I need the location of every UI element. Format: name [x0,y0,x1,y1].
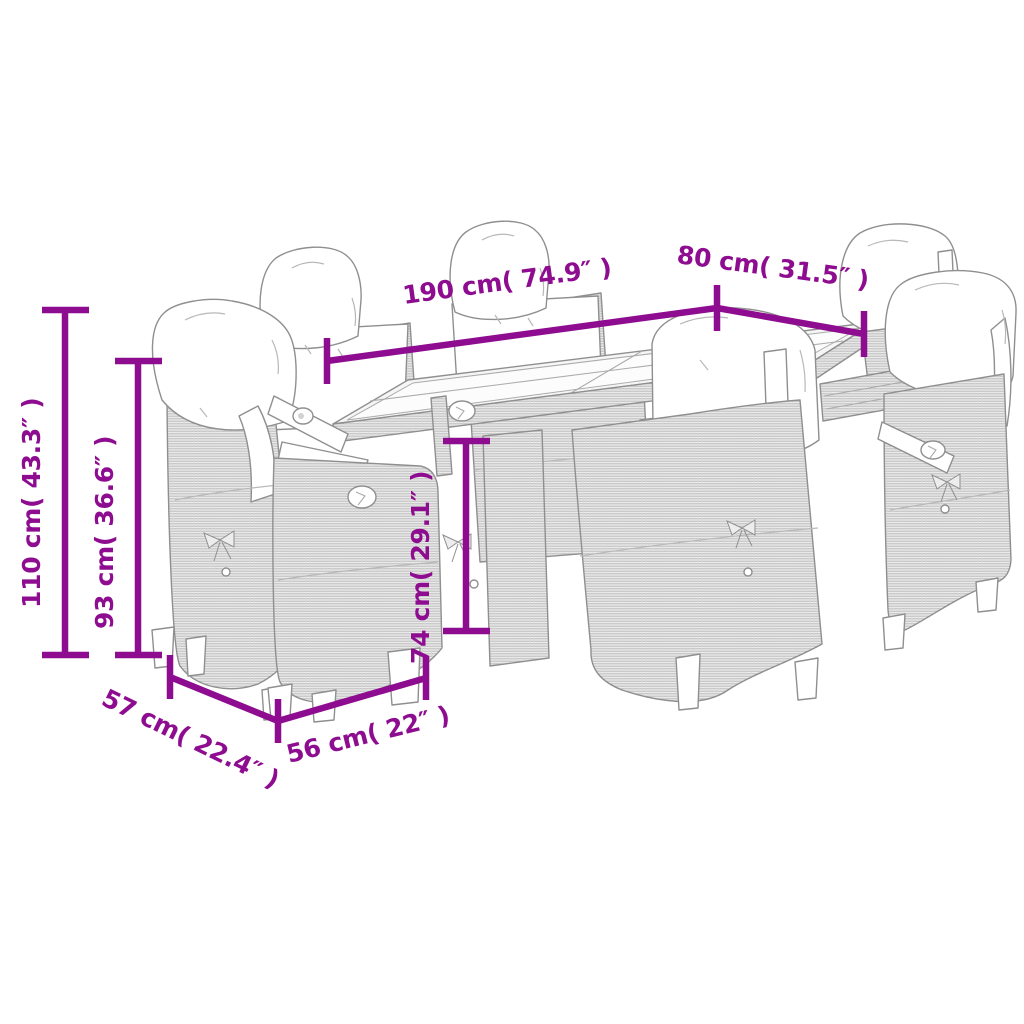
table-leg [483,430,549,666]
dimension-diagram-canvas: 190 cm( 74.9″ ) 80 cm( 31.5″ ) 110 cm( 4… [0,0,1024,1024]
dim-label-80: 80 cm( 31.5″ ) [675,240,870,294]
dim-label-110: 110 cm( 43.3″ ) [17,398,46,608]
furniture-line-art [152,221,1016,722]
dim-label-57: 57 cm( 22.4″ ) [97,683,283,794]
dim-label-74: 74 cm( 29.1″ ) [406,471,435,664]
right-end-chair [878,250,1016,650]
diagram-page: 190 cm( 74.9″ ) 80 cm( 31.5″ ) 110 cm( 4… [0,0,1024,1024]
dim-label-93: 93 cm( 36.6″ ) [90,436,119,629]
dim-line-height-93 [115,361,162,655]
dim-line-height-110 [42,310,89,655]
